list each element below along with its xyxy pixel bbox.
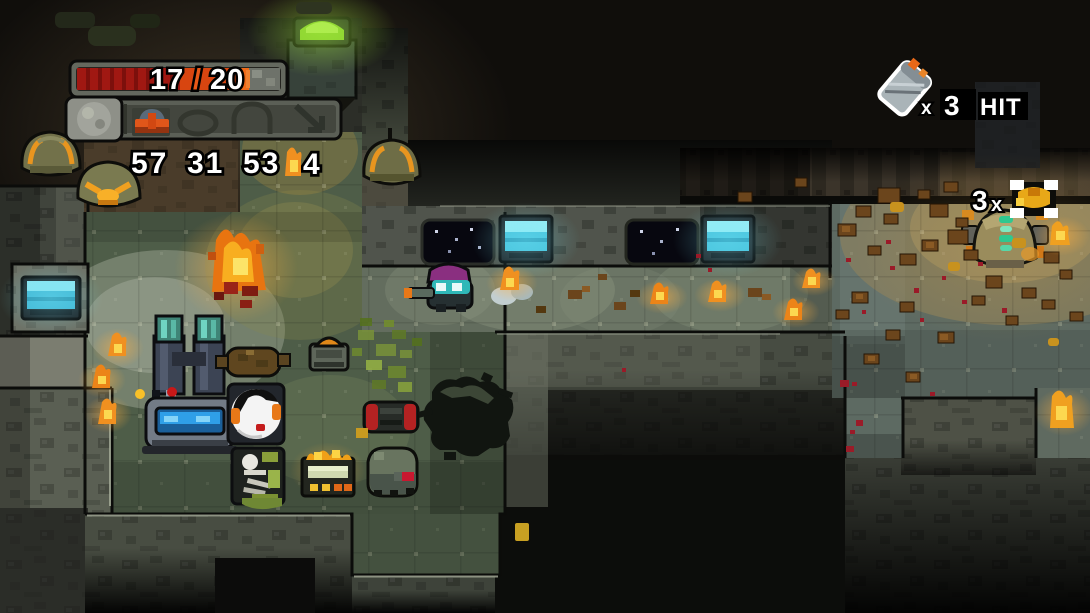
svg-text:3: 3	[972, 185, 988, 216]
svg-text:3: 3	[944, 90, 960, 121]
svg-text:x: x	[921, 98, 932, 119]
svg-text:17: 17	[150, 64, 184, 96]
svg-text:/: /	[193, 64, 201, 96]
svg-text:x: x	[991, 194, 1002, 216]
svg-text:HIT: HIT	[980, 94, 1022, 121]
svg-text:4: 4	[303, 148, 322, 181]
svg-text:20: 20	[210, 64, 244, 96]
svg-text:31: 31	[187, 147, 224, 180]
svg-text:57: 57	[131, 147, 168, 180]
svg-text:53: 53	[243, 147, 280, 180]
